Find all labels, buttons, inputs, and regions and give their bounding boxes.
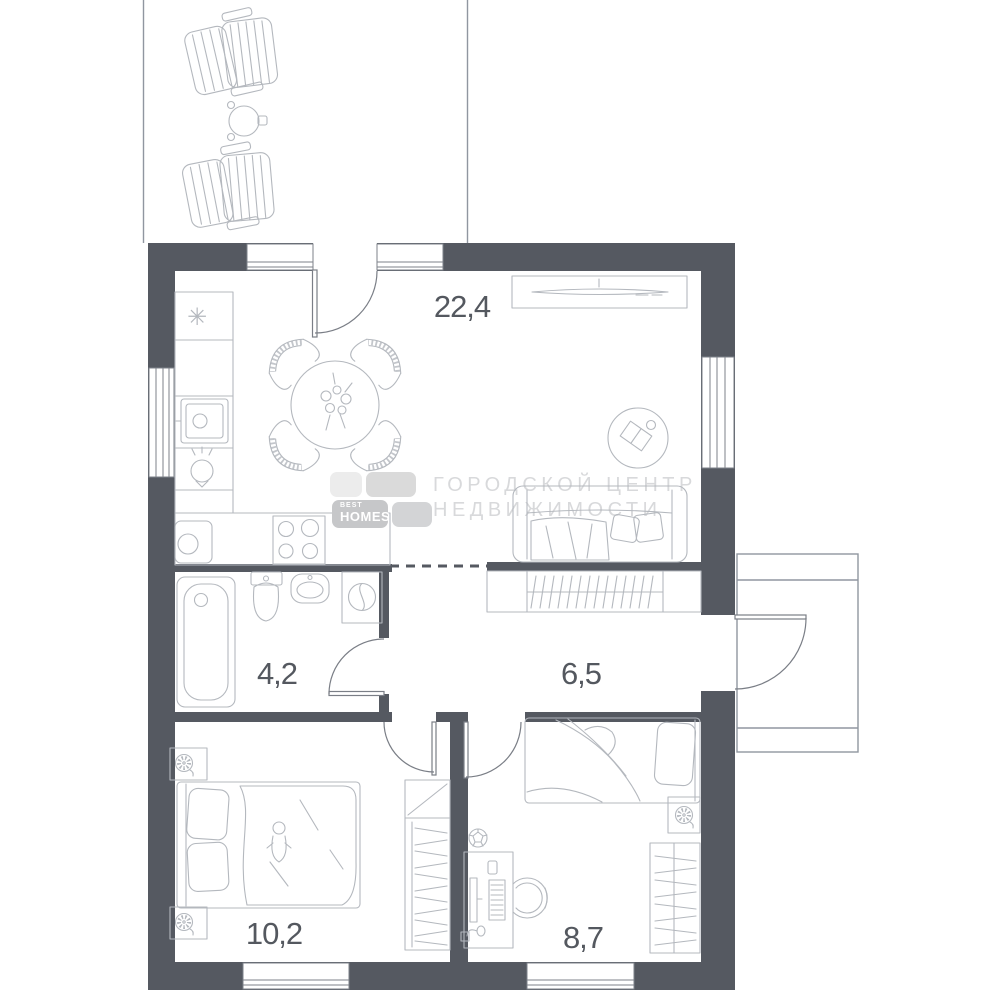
- kettle: [191, 447, 213, 487]
- base-cabinet: [175, 521, 212, 563]
- bathtub: [177, 577, 235, 707]
- washing-machine: [342, 572, 382, 623]
- bedroom-2: [461, 718, 700, 953]
- soccer-ball: [469, 829, 487, 847]
- room-label-bathroom: 4,2: [257, 656, 297, 691]
- logo-square: [330, 472, 362, 497]
- bedroom-1-window: [243, 963, 349, 989]
- kitchen-left-window: [149, 368, 174, 477]
- monitor: [470, 878, 477, 922]
- tv-console: [512, 276, 687, 308]
- desk: [461, 852, 513, 948]
- logo-brand-square: BEST HOMES: [332, 500, 388, 528]
- terrace-door-opening: [313, 242, 377, 272]
- vent-star-symbol: ✳: [187, 303, 207, 331]
- dining-table: [291, 361, 379, 449]
- best-homes-logo: BEST HOMES: [330, 472, 432, 530]
- logo-square: [392, 502, 432, 527]
- toilet: [251, 572, 282, 621]
- phone: [488, 861, 497, 874]
- bathroom-sink: [291, 574, 329, 603]
- stove: [273, 516, 325, 564]
- nightstand: [668, 797, 700, 833]
- wardrobe: [650, 843, 700, 953]
- entrance-door: [735, 615, 806, 689]
- logo-text-homes: HOMES: [340, 510, 388, 523]
- round-rug: [608, 408, 668, 468]
- bedroom-2-door: [464, 722, 521, 778]
- bedroom-2-window: [527, 963, 634, 989]
- room-label-hallway: 6,5: [561, 656, 601, 691]
- floor-plan-drawing: ✳: [0, 0, 1000, 1000]
- terrace-table: [228, 102, 268, 141]
- table-lamp: [176, 755, 194, 777]
- windows: [149, 244, 734, 989]
- desk-chair: [513, 878, 547, 918]
- entrance-opening: [701, 615, 735, 691]
- bedroom-1-door: [384, 722, 436, 775]
- dining-set: [259, 329, 410, 480]
- double-bed: [177, 782, 360, 908]
- floor-plan: ГОРОДСКОЙ ЦЕНТР НЕДВИЖИМОСТИ: [0, 0, 1000, 1000]
- logo-text-best: BEST: [340, 502, 388, 509]
- terrace: [144, 0, 468, 243]
- kitchen-sink: [176, 399, 228, 443]
- sun-lounger-1: [181, 3, 286, 104]
- single-bed: [525, 718, 700, 803]
- bathroom-door: [329, 639, 384, 696]
- bedroom-1: [170, 748, 450, 950]
- room-label-bedroom-2: 8,7: [563, 920, 603, 955]
- sun-lounger-2: [179, 138, 282, 236]
- living-room-right-window: [702, 357, 734, 468]
- keyboard: [489, 880, 505, 920]
- room-label-kitchen-living: 22,4: [434, 289, 491, 324]
- wardrobe: [405, 780, 450, 950]
- hallway-wardrobe: [487, 571, 701, 612]
- table-lamp: [676, 807, 694, 829]
- living-room-top-window: [377, 244, 443, 270]
- living-room: [512, 276, 687, 562]
- room-label-bedroom-1: 10,2: [246, 916, 302, 951]
- terrace-door: [313, 270, 378, 337]
- kitchen-window: [247, 244, 313, 270]
- bed-toy: [267, 822, 291, 862]
- table-lamp: [176, 914, 194, 936]
- sofa: [513, 486, 687, 562]
- logo-square: [366, 472, 416, 497]
